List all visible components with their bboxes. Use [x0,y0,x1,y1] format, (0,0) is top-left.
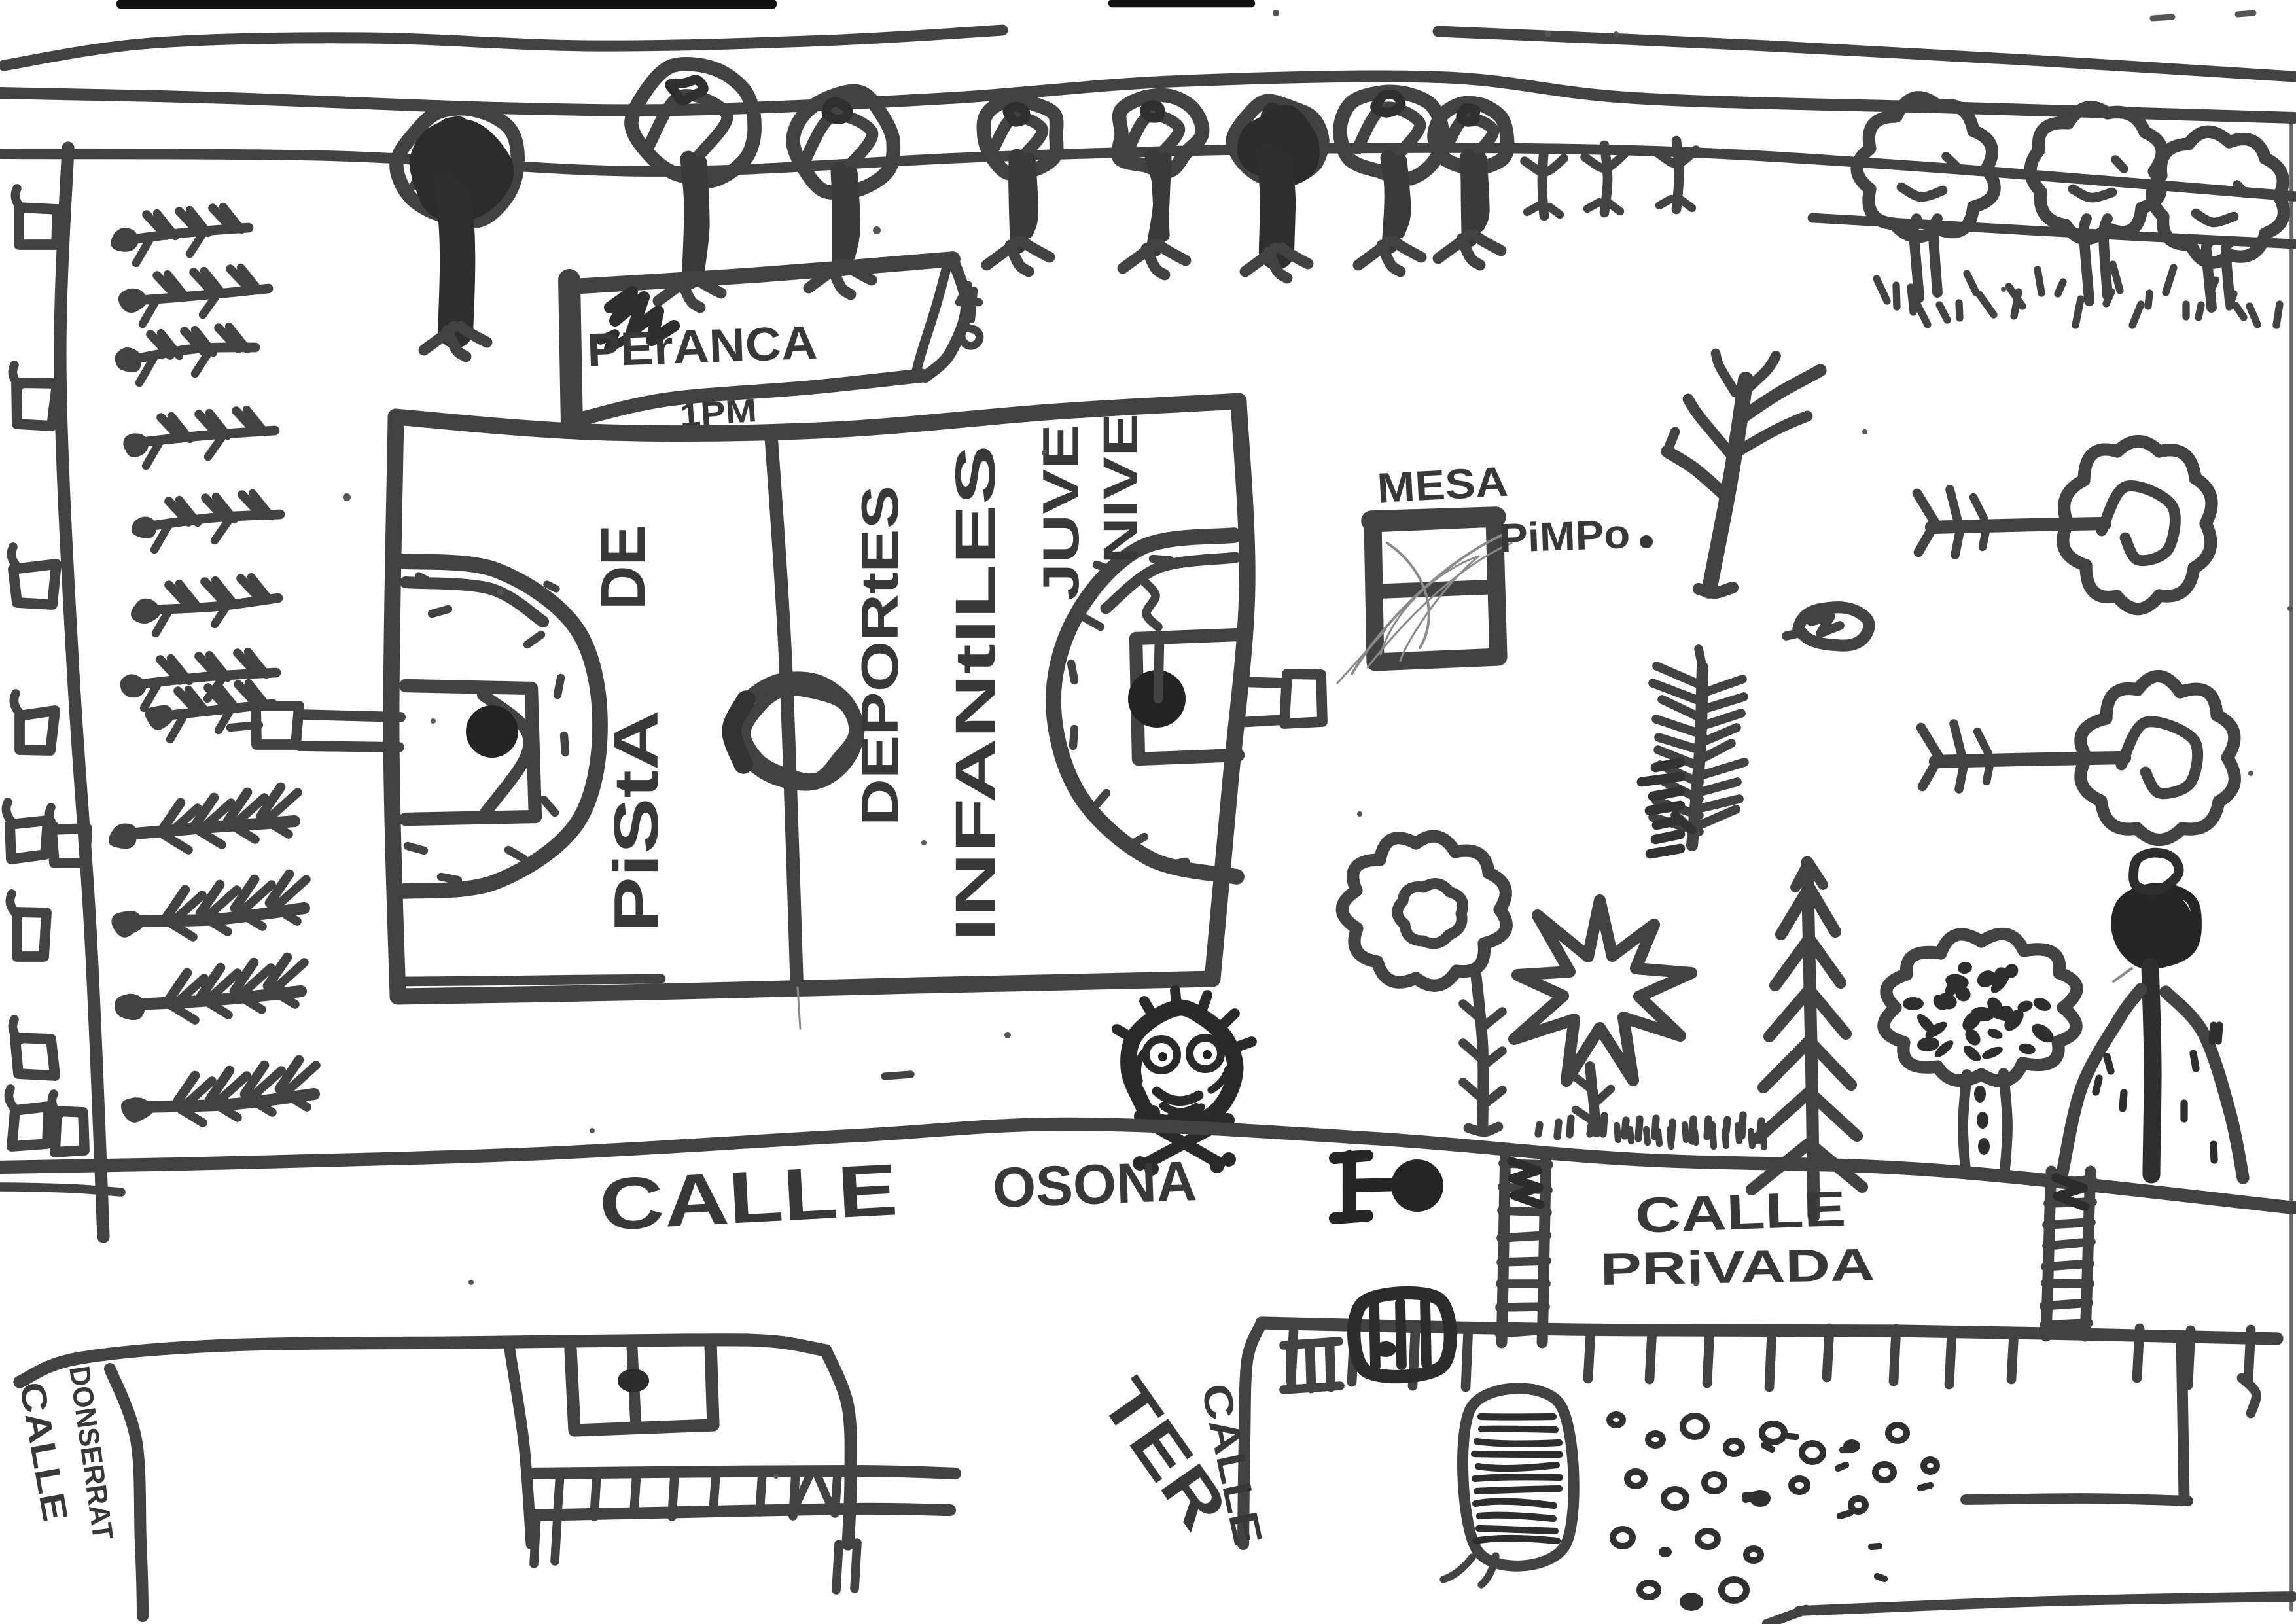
svg-text:PErANCA: PErANCA [586,317,819,377]
svg-text:OSONA: OSONA [991,1150,1197,1220]
svg-text:PiMPo: PiMPo [1498,512,1631,561]
svg-text:JUVE: JUVE [1032,424,1089,601]
svg-text:CALLE: CALLE [1634,1181,1847,1244]
svg-text:PRiVADA: PRiVADA [1600,1239,1875,1295]
svg-text:MESA: MESA [1376,458,1509,512]
svg-text:INFANtILES: INFANtILES [944,445,1007,942]
svg-text:PiStA: PiStA [601,710,671,932]
svg-text:NIVE: NIVE [1093,414,1148,564]
svg-text:DE: DE [588,525,658,610]
svg-text:CALLE: CALLE [597,1148,900,1246]
svg-text:DEPORtES: DEPORtES [851,485,909,826]
